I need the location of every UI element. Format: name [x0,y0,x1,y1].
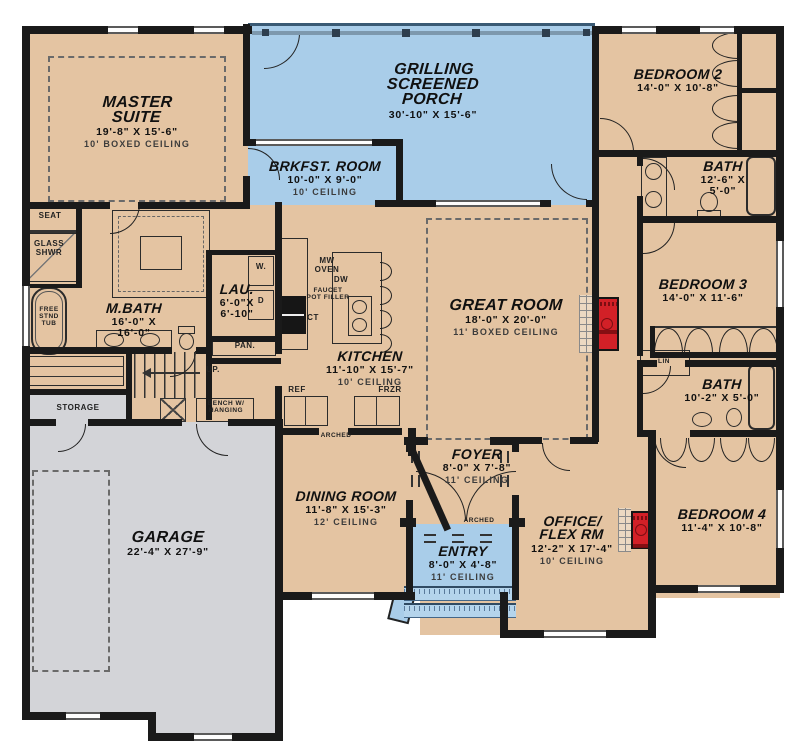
wall-segment [500,592,508,638]
toilet-bowl [726,408,742,427]
wall-segment [228,419,275,426]
wall-segment [206,358,281,364]
room-label-bedroom3: BEDROOM 3 14'-0" X 11'-6" [633,278,773,304]
window [622,26,656,34]
porch-screen-edge [248,23,595,26]
label-seat: SEAT [39,212,62,221]
label-arched-entry: ARCHED [464,517,495,524]
label-pan: PAN. [235,342,256,351]
sink [645,191,662,208]
label-dw: DW [334,276,348,285]
rname: BEDROOM 3 [633,278,774,291]
wall-segment [126,352,132,425]
rdim: 18'-0" X 20'-0" [421,315,591,326]
label-mw-oven: MW OVEN [315,257,340,275]
label-glass-shwr: GLASS SHWR [34,240,64,258]
window [544,630,606,638]
rname: GREAT ROOM [420,298,591,313]
wall-segment [22,389,132,395]
tick [411,475,413,487]
label-dryer: D [258,297,264,306]
wall-segment [26,284,82,288]
wall-segment [76,202,82,286]
wall-segment [22,347,172,354]
room-label-dining: DINING ROOM 11'-8" X 15'-3" 12' CEILING [276,490,416,527]
window [698,585,740,593]
rceil: 12' CEILING [276,517,416,527]
label-up: UP. [206,366,220,375]
sink-bowl [352,318,367,332]
rname: GRILLING SCREENED PORCH [341,62,524,108]
thin [650,326,783,328]
label-washer: W. [256,263,266,272]
room-label-mbath: M.BATH 16'-0" X 16'-0" [79,302,189,339]
rdim: 12'-6" X 5'-0" [678,175,768,197]
window [22,286,30,346]
wall-segment [592,26,599,207]
wall-segment [22,202,110,209]
room-label-bedroom2: BEDROOM 2 14'-0" X 10'-8" [608,68,748,94]
room-label-brkfst: BRKFST. ROOM 10'-0" X 9'-0" 10' CEILING [250,160,400,197]
rname: BATH [678,160,769,173]
rceil: 10' CEILING [250,187,400,197]
wall-segment [22,26,30,425]
rdim: 10'-2" X 5'-0" [667,393,777,404]
wall-segment [570,437,598,444]
porch-post [583,29,590,36]
wall-segment [348,428,402,435]
closet-island [140,236,182,270]
window [436,200,540,207]
wall-segment [685,360,783,367]
wall-segment [648,434,656,589]
window [194,733,232,741]
rdim: 11'-8" X 15'-3" [276,505,416,516]
room-label-kitchen: KITCHEN 11'-10" X 15'-7" 10' CEILING [305,350,435,387]
wall-segment [637,360,643,437]
rname: BEDROOM 2 [608,68,749,81]
porch-post [402,29,410,37]
rdim: 16'-0" X 16'-0" [79,317,189,339]
closet-shelves [28,356,124,386]
label-lin: LIN [658,358,670,365]
label-frzr: FRZR [378,386,401,395]
rdim: 10'-0" X 9'-0" [250,175,400,186]
label-arched-kitchen: ARCHED [321,432,352,439]
window [700,26,734,34]
rceil: 10' CEILING [305,377,435,387]
wall-segment [275,386,282,426]
window [256,139,372,146]
porch-post [262,29,269,36]
window [312,592,374,600]
wall-segment [243,176,250,209]
wall-segment [408,428,416,456]
rdim: 8'-0" X 4'-8" [408,560,518,571]
wall-segment [88,419,182,426]
refrigerator [284,396,328,426]
freezer [354,396,400,426]
rname: MASTER SUITE [51,95,223,125]
thin [305,396,306,426]
rname: M.BATH [79,302,190,315]
wall-segment [637,150,643,166]
thin [28,366,124,367]
rname: LAU. [202,283,273,296]
window [66,712,100,720]
tick [480,534,492,536]
tick [424,534,436,536]
wall-segment [206,250,281,255]
rname: DINING ROOM [276,490,417,503]
label-ref: REF [288,386,306,395]
rceil: 10' BOXED CEILING [52,139,222,149]
rdim: 14'-0" X 10'-8" [608,83,748,94]
wall-segment [196,347,208,354]
rdim: 19'-8" X 15'-6" [52,127,222,138]
porch-post [332,29,340,37]
thin [28,376,124,377]
rname: ENTRY [408,545,519,558]
room-label-foyer: FOYER 8'-0" X 7'-8" 11' CEILING [417,448,537,485]
wall-segment [598,150,783,157]
tick [424,541,436,543]
oven-line [282,314,304,316]
room-label-bath1: BATH 12'-6" X 5'-0" [678,160,768,197]
rdim: 30'-10" X 15'-6" [343,110,523,121]
window [108,26,138,34]
room-label-office: OFFICE/ FLEX RM 12'-2" X 17'-4" 10' CEIL… [512,515,632,566]
rname: BATH [667,378,778,391]
rname: GARAGE [92,530,243,545]
rdim: 8'-0" X 7'-8" [417,463,537,474]
rceil: 11' BOXED CEILING [421,327,591,337]
rceil: 11' CEILING [408,572,518,582]
rdim: 14'-0" X 11'-6" [633,293,773,304]
rname: BEDROOM 4 [657,508,788,521]
wall-segment [592,202,599,442]
porch-post [472,29,480,37]
wall-segment [275,202,282,354]
floor-plan: MASTER SUITE 19'-8" X 15'-6" 10' BOXED C… [0,0,800,753]
room-label-entry: ENTRY 8'-0" X 4'-8" 11' CEILING [408,545,518,582]
wall-segment [650,326,655,356]
rdim: 11'-10" X 15'-7" [305,365,435,376]
wall-segment [275,419,283,741]
thin [26,230,78,233]
wall-segment [637,216,783,223]
rname: FOYER [417,448,538,461]
wall-segment [22,419,56,426]
label-free-stnd-tub: FREE STND TUB [39,306,59,327]
wall-segment [516,437,542,444]
garage-bay-outline [32,470,110,672]
sink-bowl [352,300,367,314]
rname: KITCHEN [305,350,436,363]
rdim: 11'-4" X 10'-8" [657,523,787,534]
wall-segment [275,428,319,435]
rceil: 10' CEILING [512,556,632,566]
wall-segment [243,24,250,146]
label-bench: BENCH W/ HANGING [208,400,245,414]
room-label-greatroom: GREAT ROOM 18'-0" X 20'-0" 11' BOXED CEI… [421,298,591,337]
label-faucet-pot-filler: FAUCET POT FILLER [307,287,350,301]
label-storage: STORAGE [57,404,100,413]
porch-screen-rail [252,31,592,35]
rname: BRKFST. ROOM [250,160,401,173]
thin [376,396,377,426]
room-label-bath2: BATH 10'-2" X 5'-0" [667,378,777,404]
wall-segment [592,26,784,34]
room-label-porch: GRILLING SCREENED PORCH 30'-10" X 15'-6" [343,62,523,121]
porch-post [542,29,550,37]
rname: OFFICE/ FLEX RM [511,515,633,542]
wall-segment [690,430,783,437]
label-ct: CT [307,314,319,323]
window [776,241,784,307]
rceil: 11' CEILING [417,475,537,485]
stairs-arrowhead [142,368,151,378]
tick [452,534,464,536]
window [194,26,224,34]
wall-segment [22,419,30,720]
sink [692,412,712,427]
room-label-master-suite: MASTER SUITE 19'-8" X 15'-6" 10' BOXED C… [52,95,222,149]
rdim: 12'-2" X 17'-4" [512,544,632,555]
wall-segment [138,202,250,209]
room-label-bedroom4: BEDROOM 4 11'-4" X 10'-8" [657,508,787,534]
rdim: 22'-4" X 27'-9" [93,547,243,558]
room-label-garage: GARAGE 22'-4" X 27'-9" [93,530,243,558]
